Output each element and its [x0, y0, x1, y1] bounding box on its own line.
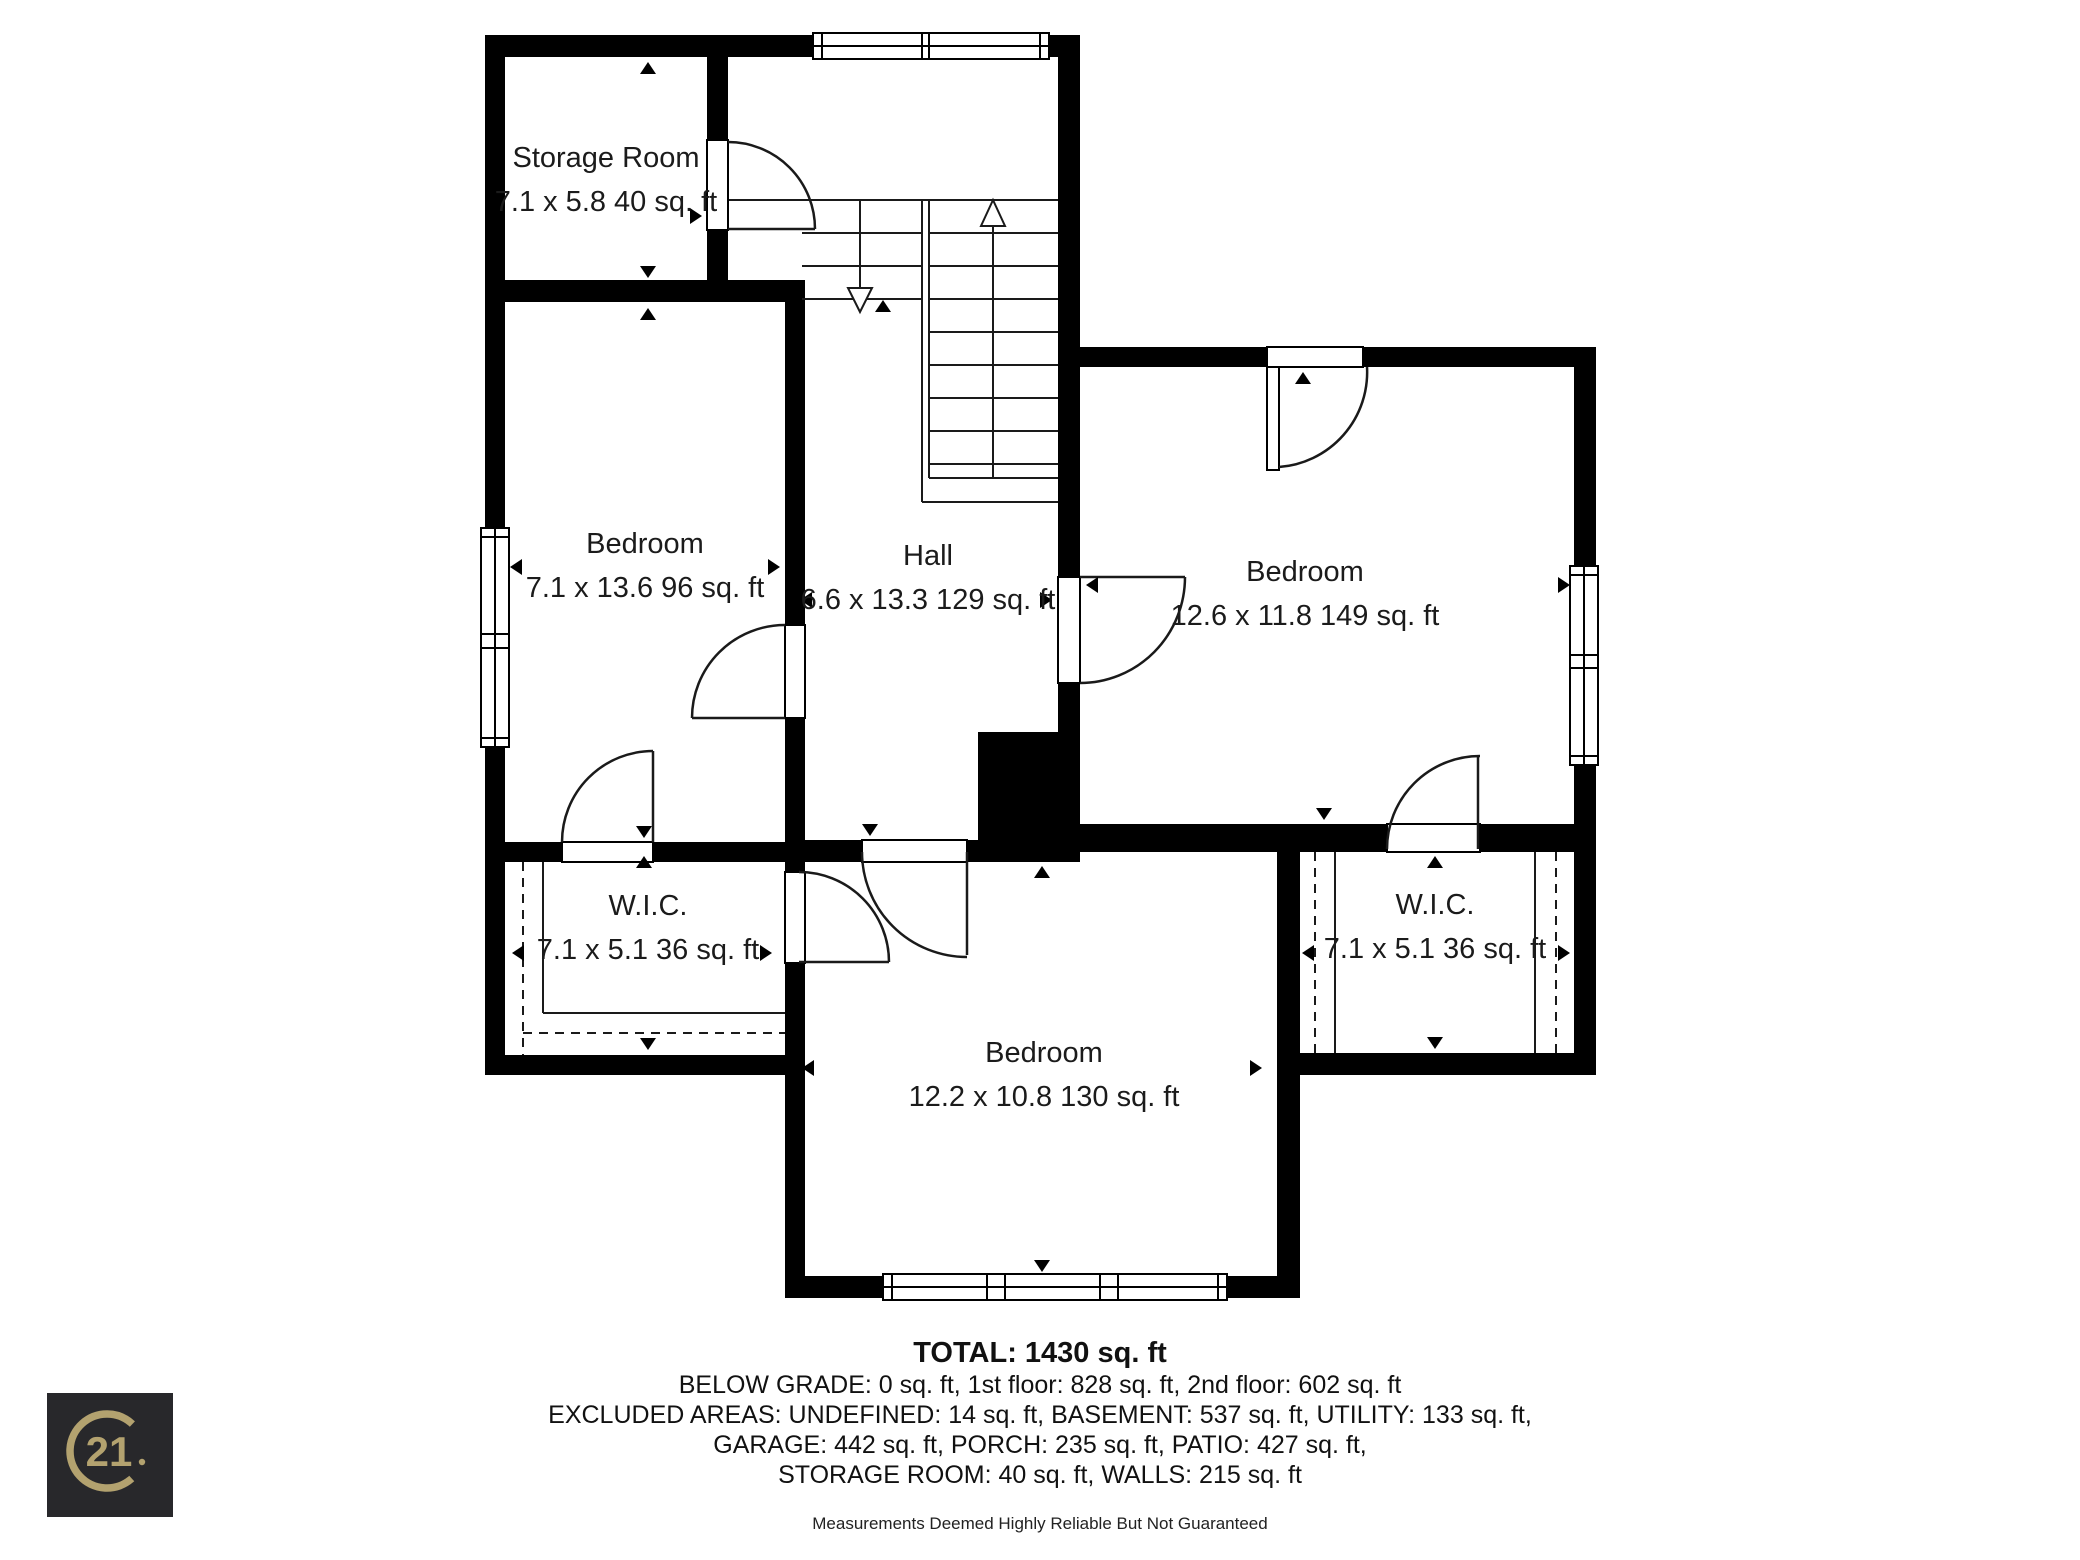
- summary-line: EXCLUDED AREAS: UNDEFINED: 14 sq. ft, BA…: [0, 1400, 2080, 1430]
- room-name: W.I.C.: [537, 884, 759, 928]
- window-top: [813, 33, 1049, 59]
- label-bedroom-bottom: Bedroom 12.2 x 10.8 130 sq. ft: [909, 1031, 1180, 1119]
- wall-storage-bottom: [485, 280, 805, 302]
- door-arc-bedroom-right-top: [1279, 367, 1367, 467]
- floor-plan-drawing: [0, 0, 2080, 1560]
- floor-plan-page: Storage Room 7.1 x 5.8 40 sq. ft Bedroom…: [0, 0, 2080, 1560]
- door-arc-bedroom-right: [1080, 577, 1185, 683]
- disclaimer-text: Measurements Deemed Highly Reliable But …: [0, 1514, 2080, 1534]
- room-name: Storage Room: [495, 136, 717, 180]
- label-wic-left: W.I.C. 7.1 x 5.1 36 sq. ft: [537, 884, 759, 972]
- c21-number: 21: [86, 1428, 133, 1475]
- door-arc-bedroom-left: [692, 625, 785, 718]
- door-opening-wic-pass: [785, 872, 805, 963]
- room-dims: 7.1 x 13.6 96 sq. ft: [526, 566, 765, 610]
- door-leaf-bedroom-right-top: [1267, 367, 1279, 470]
- window-bottom: [883, 1274, 1227, 1300]
- room-dims: 7.1 x 5.1 36 sq. ft: [1324, 927, 1546, 971]
- wall-wic-right-east: [1574, 852, 1596, 1075]
- room-dims: 12.6 x 11.8 149 sq. ft: [1171, 594, 1440, 638]
- total-area-text: TOTAL: 1430 sq. ft: [0, 1336, 2080, 1370]
- window-left: [481, 528, 509, 747]
- stairs-small-arrow-icon: [875, 300, 891, 312]
- area-summary: TOTAL: 1430 sq. ft BELOW GRADE: 0 sq. ft…: [0, 1336, 2080, 1490]
- wall-bedroom-right-bottom: [1058, 824, 1596, 852]
- door-arc-wic-pass: [799, 872, 889, 962]
- label-wic-right: W.I.C. 7.1 x 5.1 36 sq. ft: [1324, 883, 1546, 971]
- room-dims: 6.6 x 13.3 129 sq. ft: [801, 578, 1056, 622]
- label-storage-room: Storage Room 7.1 x 5.8 40 sq. ft: [495, 136, 717, 224]
- door-opening-bedroom-right-top: [1267, 347, 1363, 367]
- room-name: W.I.C.: [1324, 883, 1546, 927]
- wall-wic-left-bottom: [485, 1055, 805, 1075]
- label-hall: Hall 6.6 x 13.3 129 sq. ft: [801, 534, 1056, 622]
- c21-emblem-icon: 21: [47, 1393, 173, 1517]
- door-opening-bedroom-right: [1058, 577, 1080, 683]
- window-right: [1570, 566, 1598, 765]
- label-bedroom-left: Bedroom 7.1 x 13.6 96 sq. ft: [526, 522, 765, 610]
- door-arc-bedroom-bottom: [862, 852, 967, 957]
- room-dims: 7.1 x 5.8 40 sq. ft: [495, 180, 717, 224]
- door-opening-bedroom-bottom: [862, 840, 967, 862]
- room-name: Bedroom: [909, 1031, 1180, 1075]
- wall-wic-right-bottom: [1277, 1053, 1596, 1075]
- summary-line: BELOW GRADE: 0 sq. ft, 1st floor: 828 sq…: [0, 1370, 2080, 1400]
- century21-logo: 21: [47, 1393, 173, 1517]
- wall-bedroom-bottom-right: [1277, 838, 1300, 1298]
- room-name: Bedroom: [1171, 550, 1440, 594]
- summary-line: GARAGE: 442 sq. ft, PORCH: 235 sq. ft, P…: [0, 1430, 2080, 1460]
- door-arc-storage: [728, 142, 815, 229]
- c21-dot-icon: [139, 1459, 145, 1465]
- room-dims: 12.2 x 10.8 130 sq. ft: [909, 1075, 1180, 1119]
- stairs-up-arrow-icon: [981, 200, 1005, 226]
- room-dims: 7.1 x 5.1 36 sq. ft: [537, 928, 759, 972]
- room-name: Bedroom: [526, 522, 765, 566]
- summary-line: STORAGE ROOM: 40 sq. ft, WALLS: 215 sq. …: [0, 1460, 2080, 1490]
- door-opening-wic-left: [562, 842, 653, 862]
- door-opening-wic-right: [1387, 824, 1480, 852]
- stairs: [728, 200, 1058, 502]
- label-bedroom-right: Bedroom 12.6 x 11.8 149 sq. ft: [1171, 550, 1440, 638]
- door-opening-bedroom-left: [785, 625, 805, 718]
- room-name: Hall: [801, 534, 1056, 578]
- wall-bedroom-hall: [785, 280, 805, 1298]
